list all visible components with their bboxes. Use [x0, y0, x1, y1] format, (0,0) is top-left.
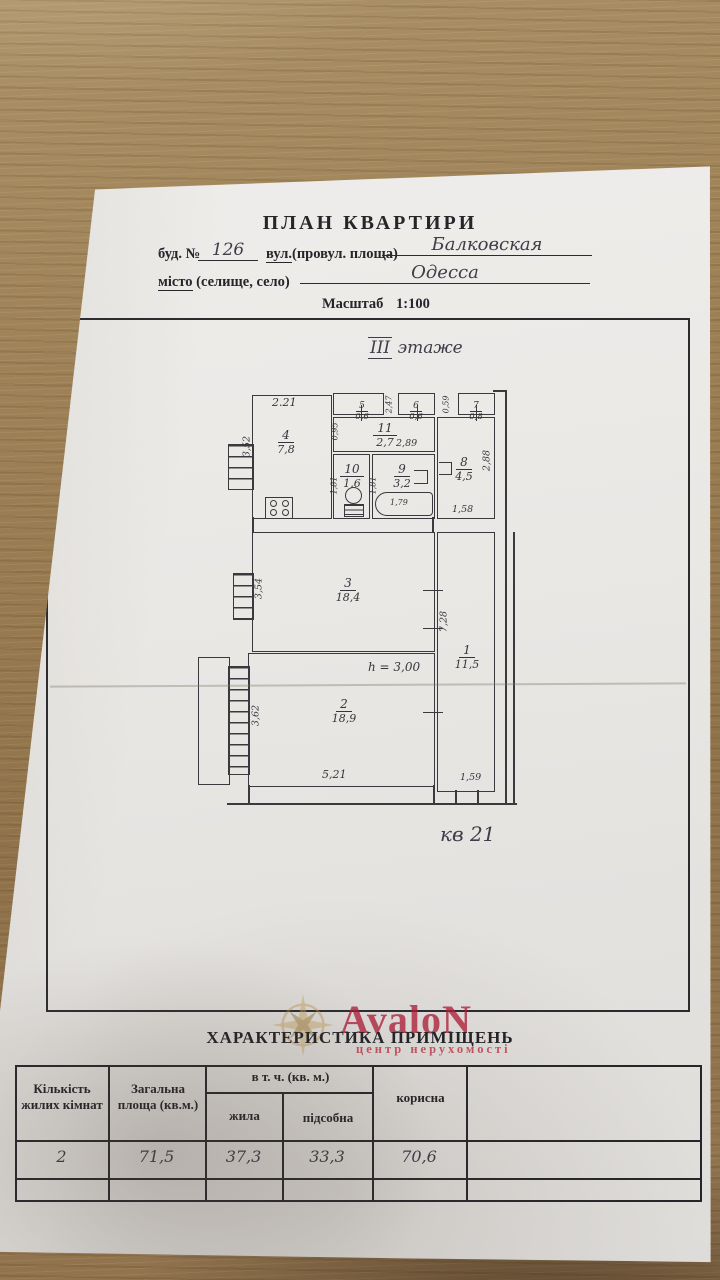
dim-2-47: 2,47: [385, 390, 394, 420]
dim-1-81-a: 1,81: [330, 471, 339, 501]
city-value: Одесса: [300, 262, 590, 284]
table-line: [15, 1140, 702, 1142]
table-header-rooms: Кількість жилих кімнат: [18, 1081, 106, 1113]
toilet-tank-icon: [344, 504, 364, 517]
ceiling-height-note: h = 3,00: [368, 660, 420, 674]
dim-3-52: 3,52: [242, 427, 253, 467]
wall-line: [432, 517, 434, 532]
dim-0-95: 0,95: [331, 417, 340, 447]
document-paper: ПЛАН КВАРТИРИ буд. № 126 вул.(провул. пл…: [0, 0, 720, 1280]
room-label-7: 70,8: [461, 393, 491, 422]
value-rooms: 2: [15, 1147, 108, 1166]
value-living: 37,3: [205, 1147, 282, 1166]
room-number: 9: [394, 462, 410, 477]
wall-tick: [423, 712, 443, 713]
table-header-living: жила: [207, 1108, 282, 1124]
street-label: вул.(провул. площа): [266, 246, 398, 263]
room-number: 4: [278, 428, 294, 443]
floor-label: III этаже: [368, 338, 463, 358]
table-header-total: Загальна площа (кв.м.): [112, 1081, 204, 1113]
dim-1-58: 1,58: [452, 504, 473, 515]
table-line: [15, 1065, 17, 1202]
wall-line: [433, 785, 435, 804]
table-line: [700, 1065, 702, 1202]
dim-1-59: 1,59: [460, 772, 481, 783]
room-label-9: 93,2: [380, 458, 424, 490]
room-number: 2: [336, 697, 352, 712]
room-label-3: 318,4: [326, 572, 370, 604]
stove-icon: [265, 497, 293, 519]
dim-7-28: 7,28: [439, 602, 450, 642]
outer-wall-line: [513, 532, 515, 805]
room-number: 10: [340, 462, 363, 477]
room-number: 6: [410, 401, 422, 412]
dim-1-79: 1,79: [390, 498, 408, 507]
street-label-underlined: вул.: [266, 246, 292, 263]
entrance-step-line: [477, 790, 479, 804]
room-number: 3: [340, 576, 356, 591]
apartment-number-note: кв 21: [440, 822, 495, 846]
table-line: [108, 1065, 110, 1202]
wall-line: [248, 785, 250, 804]
wall-tick: [423, 590, 443, 591]
dim-2-88: 2,88: [482, 441, 493, 481]
table-line: [466, 1065, 468, 1202]
street-value: Балковская: [382, 234, 592, 256]
dim-3-54: 3,54: [254, 569, 265, 609]
outer-wall-line: [227, 803, 517, 805]
room-area: 3,2: [380, 477, 424, 490]
window-hatch: [233, 573, 254, 620]
table-header-group: в т. ч. (кв. м.): [207, 1069, 374, 1085]
room-number: 5: [356, 401, 368, 412]
dim-5-21: 5,21: [322, 768, 347, 781]
room-area: 4,5: [442, 470, 486, 483]
value-total: 71,5: [108, 1147, 205, 1166]
room-number: 7: [470, 401, 482, 412]
wall-line: [252, 517, 254, 532]
wall-line: [493, 390, 506, 392]
city-label-underlined: місто: [158, 274, 193, 291]
room-label-1: 111,5: [445, 639, 489, 671]
dim-0-59: 0,59: [442, 390, 451, 420]
table-line: [372, 1065, 374, 1202]
room-area: 18,4: [326, 591, 370, 604]
dim-3-62: 3,62: [251, 696, 262, 736]
table-line: [205, 1065, 207, 1202]
building-number-label: буд. №: [158, 246, 200, 263]
table-header-useful: корисна: [375, 1090, 466, 1106]
room-number: 8: [456, 455, 472, 470]
room-area: 11,5: [445, 658, 489, 671]
dim-2-89: 2,89: [396, 438, 417, 449]
scale-label: Масштаб: [322, 296, 383, 313]
table-line: [15, 1065, 702, 1067]
table-line: [15, 1178, 702, 1180]
room-area: 18,9: [322, 712, 366, 725]
room-area: 7,8: [264, 443, 308, 456]
table-line: [207, 1092, 374, 1094]
characteristics-title: ХАРАКТЕРИСТИКА ПРИМІЩЕНЬ: [60, 1030, 660, 1046]
building-number-value: 126: [198, 240, 258, 261]
scale-value: 1:100: [396, 296, 430, 313]
city-label: місто (селище, село): [158, 274, 290, 291]
room-area: 0,8: [461, 412, 491, 422]
table-line: [15, 1200, 702, 1202]
dim-2-21: 2.21: [272, 396, 297, 409]
balcony-outline: [198, 657, 230, 785]
room-label-8: 84,5: [442, 451, 486, 483]
room-label-4: 47,8: [264, 424, 308, 456]
floor-roman-numeral: III: [368, 337, 392, 359]
room-number: 11: [373, 421, 396, 436]
value-aux: 33,3: [282, 1147, 372, 1166]
entrance-step-line: [455, 790, 457, 804]
floor-word: этаже: [398, 338, 463, 358]
dim-1-81-b: 1,81: [369, 471, 378, 501]
outer-wall-line: [505, 390, 507, 805]
room-label-2: 218,9: [322, 693, 366, 725]
document-title: ПЛАН КВАРТИРИ: [20, 212, 720, 235]
window-hatch: [228, 666, 250, 775]
value-useful: 70,6: [372, 1147, 466, 1166]
photo-of-floor-plan: ПЛАН КВАРТИРИ буд. № 126 вул.(провул. пл…: [0, 0, 720, 1280]
table-header-aux: підсобна: [284, 1110, 372, 1126]
city-label-rest: (селище, село): [193, 274, 290, 290]
room-number: 1: [459, 643, 475, 658]
